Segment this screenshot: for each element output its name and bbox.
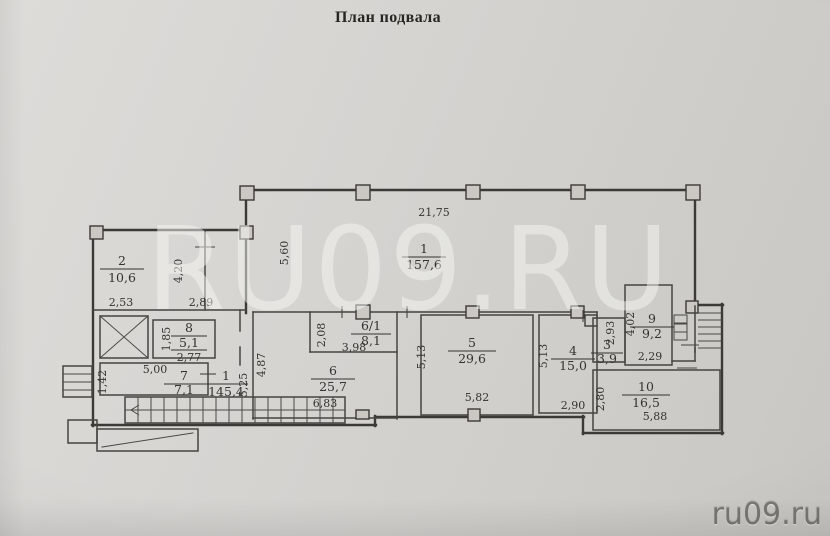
room-5-area: 29,6: [458, 351, 486, 366]
room-1-corridor-number: 1: [222, 368, 230, 383]
dim-label-17: 2,90: [561, 399, 586, 412]
room-2-number: 2: [118, 253, 126, 268]
dim-label-03: 1,85: [160, 327, 173, 352]
dim-label-13: 6,83: [313, 397, 338, 410]
room-7-area: 7,1: [174, 382, 194, 397]
room-9-area: 9,2: [642, 326, 662, 341]
basement-plan-page: План подвала: [0, 0, 830, 536]
room-4-number: 4: [569, 343, 577, 358]
dim-label-15: 5,82: [465, 391, 490, 404]
dim-label-06: 1,42: [96, 370, 109, 395]
room-8-area: 5,1: [179, 335, 199, 350]
room-6-area: 25,7: [319, 379, 347, 394]
dim-label-05: 5,00: [143, 363, 168, 376]
dim-label-19: 4,02: [624, 312, 637, 337]
room-8-number: 8: [185, 320, 193, 335]
dim-label-00: 2,53: [109, 296, 134, 309]
dim-label-22: 5,88: [643, 410, 668, 423]
room-5-number: 5: [468, 335, 476, 350]
dim-label-21: 2,80: [594, 387, 607, 412]
right-staircase: [672, 306, 722, 361]
room-6-number: 6: [329, 363, 337, 378]
dim-label-02: 4,20: [172, 259, 185, 284]
dim-label-14: 5,13: [415, 345, 428, 370]
dim-label-11: 2,08: [315, 323, 328, 348]
room-6-1-number: 6/1: [361, 318, 381, 333]
dimension-ticks: [195, 247, 699, 374]
room-2-area: 10,6: [108, 270, 136, 285]
room-7-number: 7: [180, 368, 188, 383]
entrance-steps: [63, 366, 92, 397]
dim-label-10: 4,87: [255, 353, 268, 378]
dim-label-04: 2,77: [177, 351, 202, 364]
dim-label-18: 2,93: [604, 321, 617, 346]
dim-label-07: 5,25: [237, 373, 250, 398]
dim-label-01: 2,89: [189, 296, 214, 309]
dim-label-08: 21,75: [418, 206, 450, 219]
room-3-area: 3,9: [597, 351, 617, 366]
floor-plan-drawing: 2 10,6 8 5,1 7 7,1 1 157,6 1 145,4 6/1 8…: [0, 0, 830, 536]
room-10-area: 16,5: [632, 395, 660, 410]
room-4-area: 15,0: [559, 358, 587, 373]
room-10-number: 10: [638, 379, 654, 394]
elevator-shaft: [100, 316, 148, 358]
room-1-hall-number: 1: [420, 241, 428, 256]
dim-label-09: 5,60: [278, 241, 291, 266]
room-9-number: 9: [648, 311, 656, 326]
dim-label-16: 5,13: [537, 344, 550, 369]
site-watermark: ru09.ru: [712, 497, 822, 532]
dim-label-12: 3,98: [342, 341, 367, 354]
room-1-hall-area: 157,6: [406, 257, 442, 272]
dim-label-20: 2,29: [638, 350, 663, 363]
